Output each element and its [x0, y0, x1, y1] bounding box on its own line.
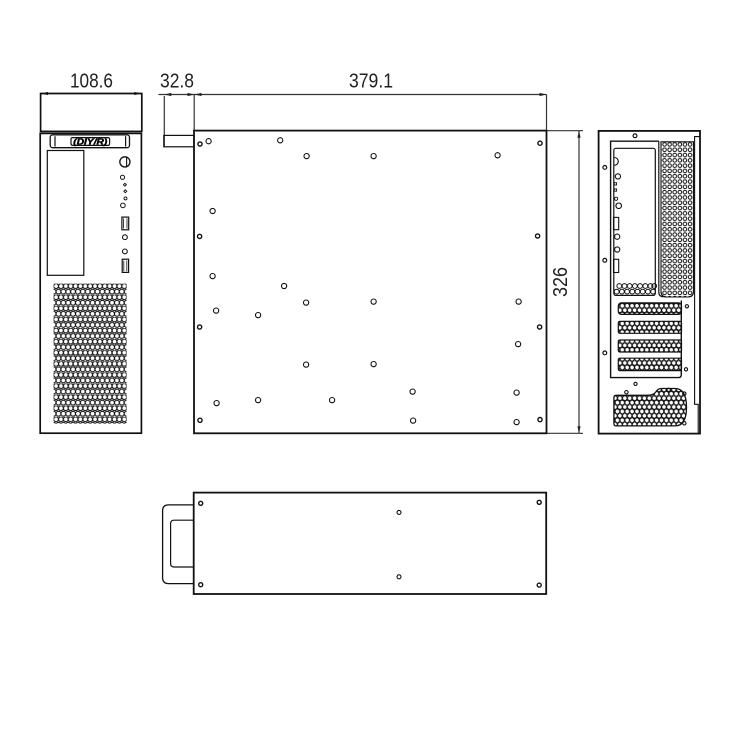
- svg-text:108.6: 108.6: [70, 71, 113, 93]
- svg-text:(DIY/R): (DIY/R): [73, 137, 107, 147]
- svg-text:326: 326: [550, 267, 572, 297]
- svg-text:379.1: 379.1: [349, 71, 393, 93]
- svg-text:32.8: 32.8: [160, 71, 194, 93]
